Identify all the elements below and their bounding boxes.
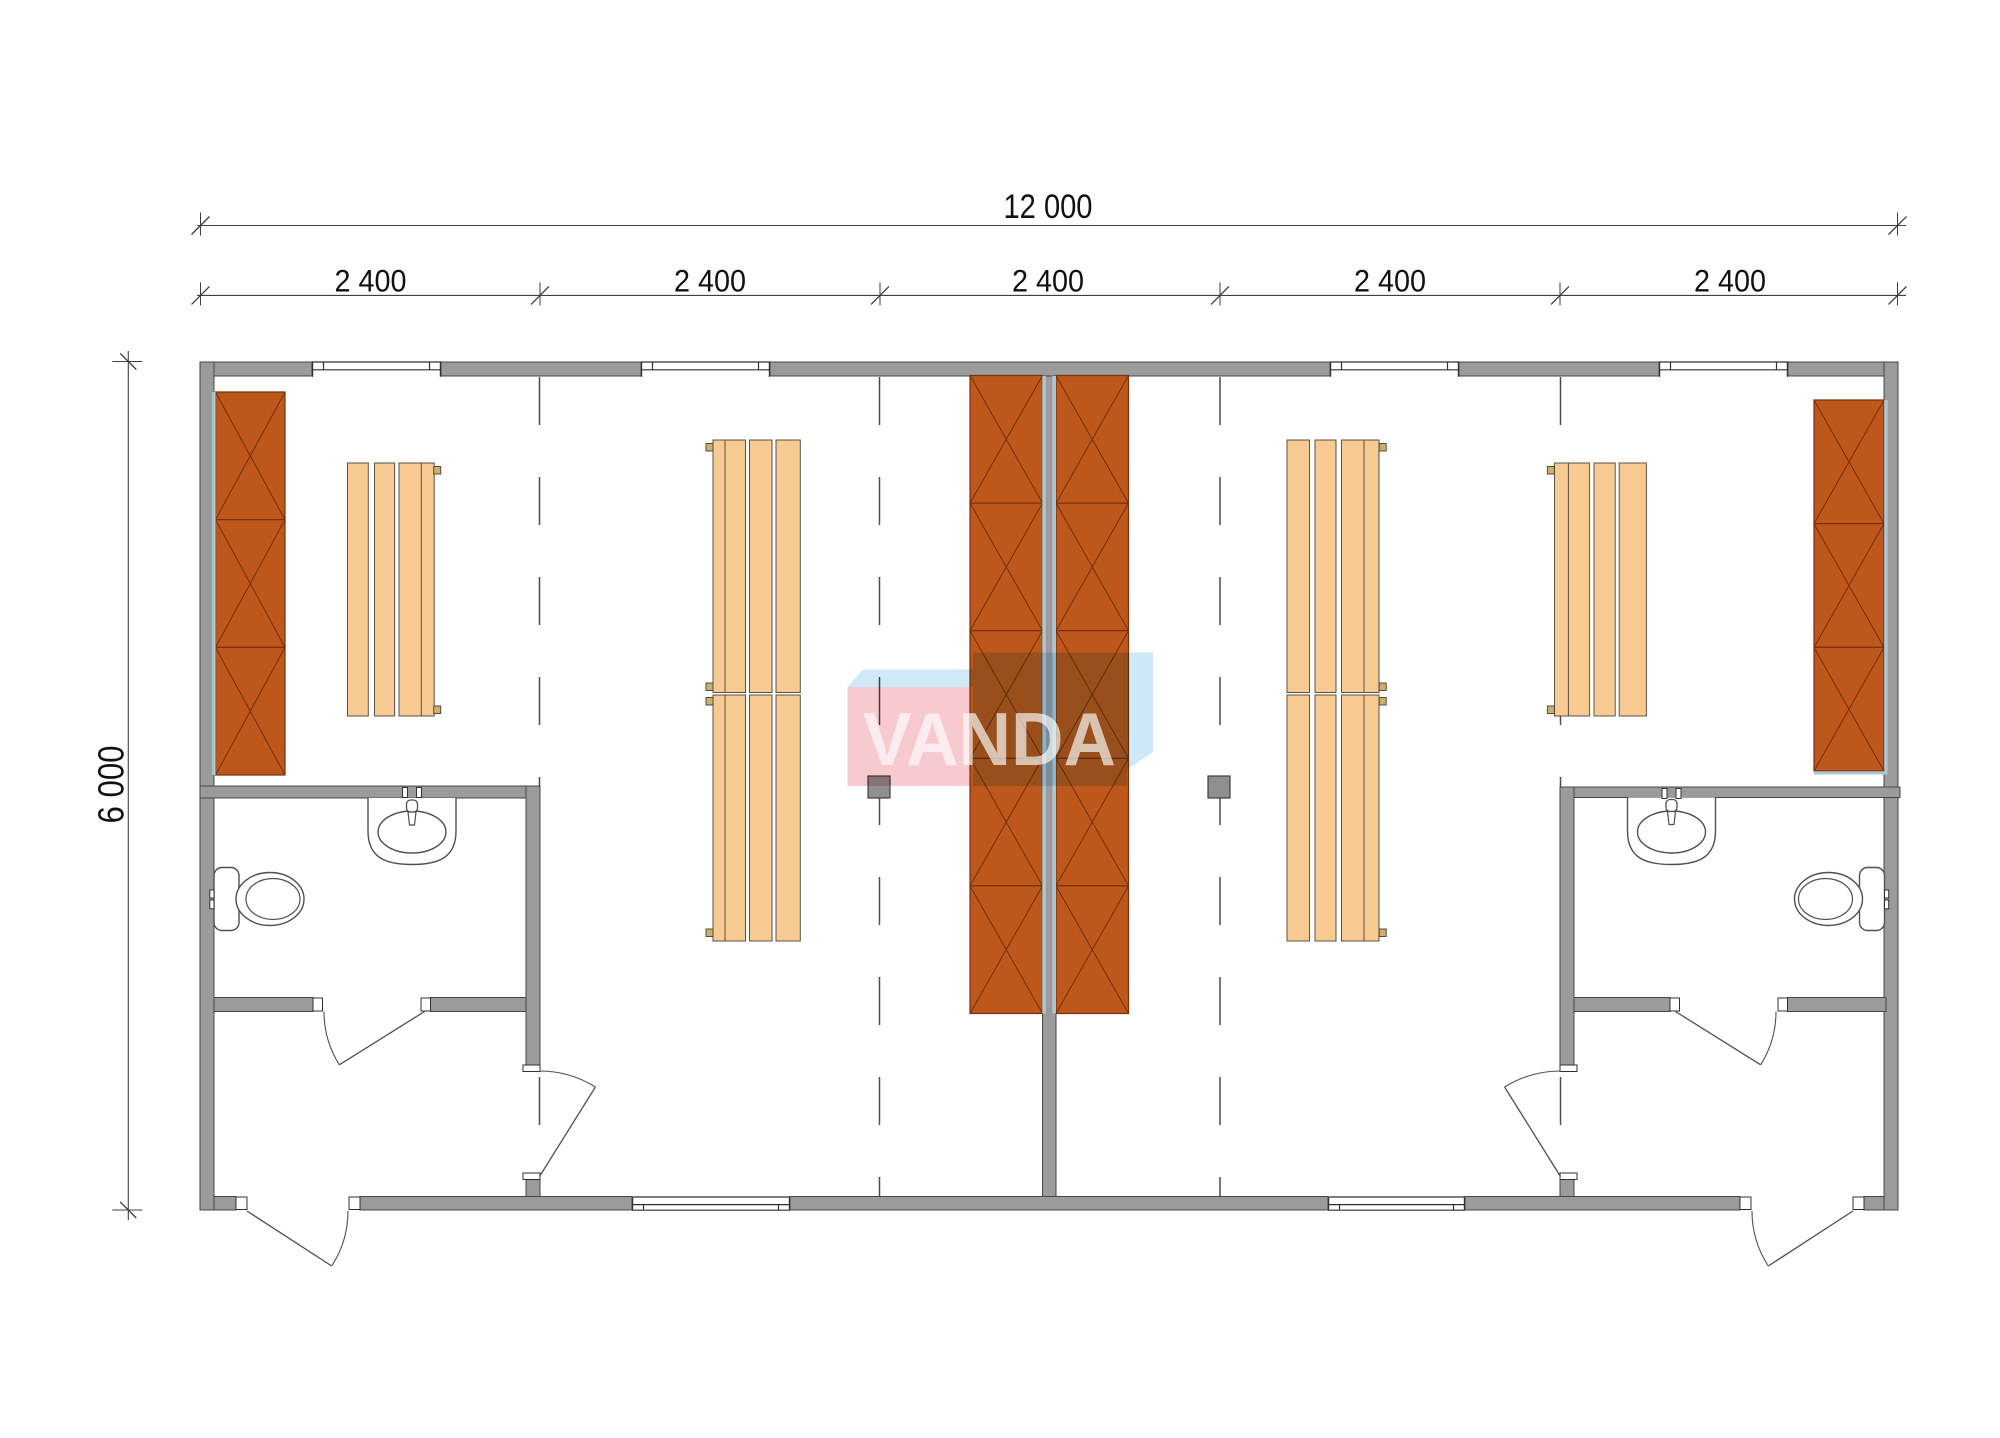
- svg-text:12 000: 12 000: [1004, 188, 1093, 226]
- svg-text:2 400: 2 400: [1694, 263, 1766, 299]
- svg-text:2 400: 2 400: [335, 263, 407, 299]
- svg-text:2 400: 2 400: [674, 263, 746, 299]
- svg-text:2 400: 2 400: [1012, 263, 1084, 299]
- svg-text:2 400: 2 400: [1354, 263, 1426, 299]
- svg-text:6 000: 6 000: [91, 746, 132, 824]
- svg-text:VANDA: VANDA: [863, 697, 1116, 781]
